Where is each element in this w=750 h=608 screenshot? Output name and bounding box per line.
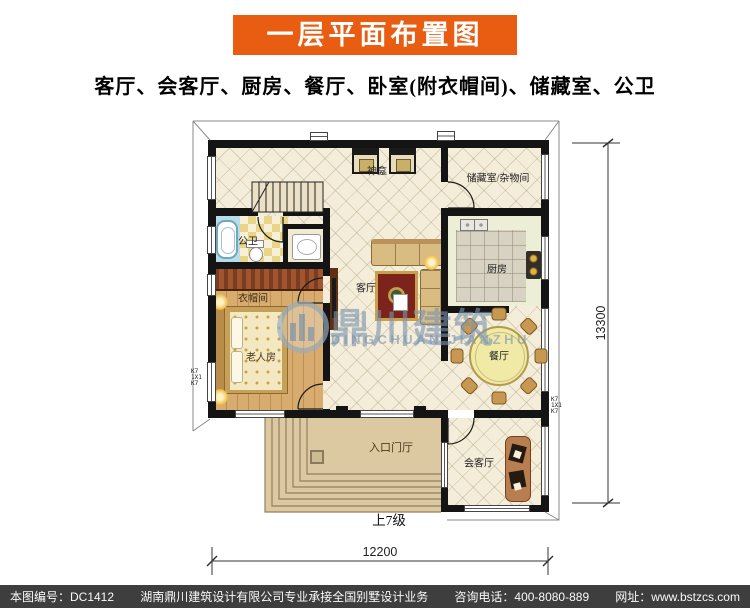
floor-plan-page: 一层平面布置图 客厅、会客厅、厨房、餐厅、卧室(附衣帽间)、储藏室、公卫 <box>0 0 750 608</box>
room-label-bedroom: 老人房 <box>246 349 276 364</box>
column-annotation: K7 1X1 K7 <box>191 369 202 387</box>
room-label-closet: 衣帽间 <box>238 290 268 305</box>
room-label-kitchen: 厨房 <box>487 261 507 276</box>
footer-website: 网址：www.bstzcs.com <box>615 588 740 605</box>
dimension-right: 13300 <box>594 294 608 352</box>
dimension-bottom: 12200 <box>350 545 410 559</box>
room-label-dining: 餐厅 <box>489 348 509 363</box>
room-label-storage: 储藏室/杂物间 <box>467 170 530 185</box>
room-label-bathroom: 公卫 <box>238 233 258 248</box>
footer-bar: 本图编号：DC1412 湖南鼎川建筑设计有限公司专业承接全国别墅设计业务 咨询电… <box>0 585 750 608</box>
steps-annotation: 上7级 <box>372 509 406 529</box>
room-label-shrine: 神龛 <box>367 163 387 178</box>
room-label-living: 客厅 <box>356 280 376 295</box>
footer-phone: 咨询电话：400-8080-889 <box>454 588 589 605</box>
room-label-reception: 会客厅 <box>464 455 494 470</box>
watermark-text-en: DINGCHUAN JIANZHU <box>331 332 530 347</box>
footer-drawing-no: 本图编号：DC1412 <box>10 588 114 605</box>
watermark-logo-icon <box>277 301 329 353</box>
footer-company: 湖南鼎川建筑设计有限公司专业承接全国别墅设计业务 <box>140 588 428 605</box>
column-annotation: K7 1X1 K7 <box>551 397 562 415</box>
room-label-entry: 入口门厅 <box>369 439 413 455</box>
